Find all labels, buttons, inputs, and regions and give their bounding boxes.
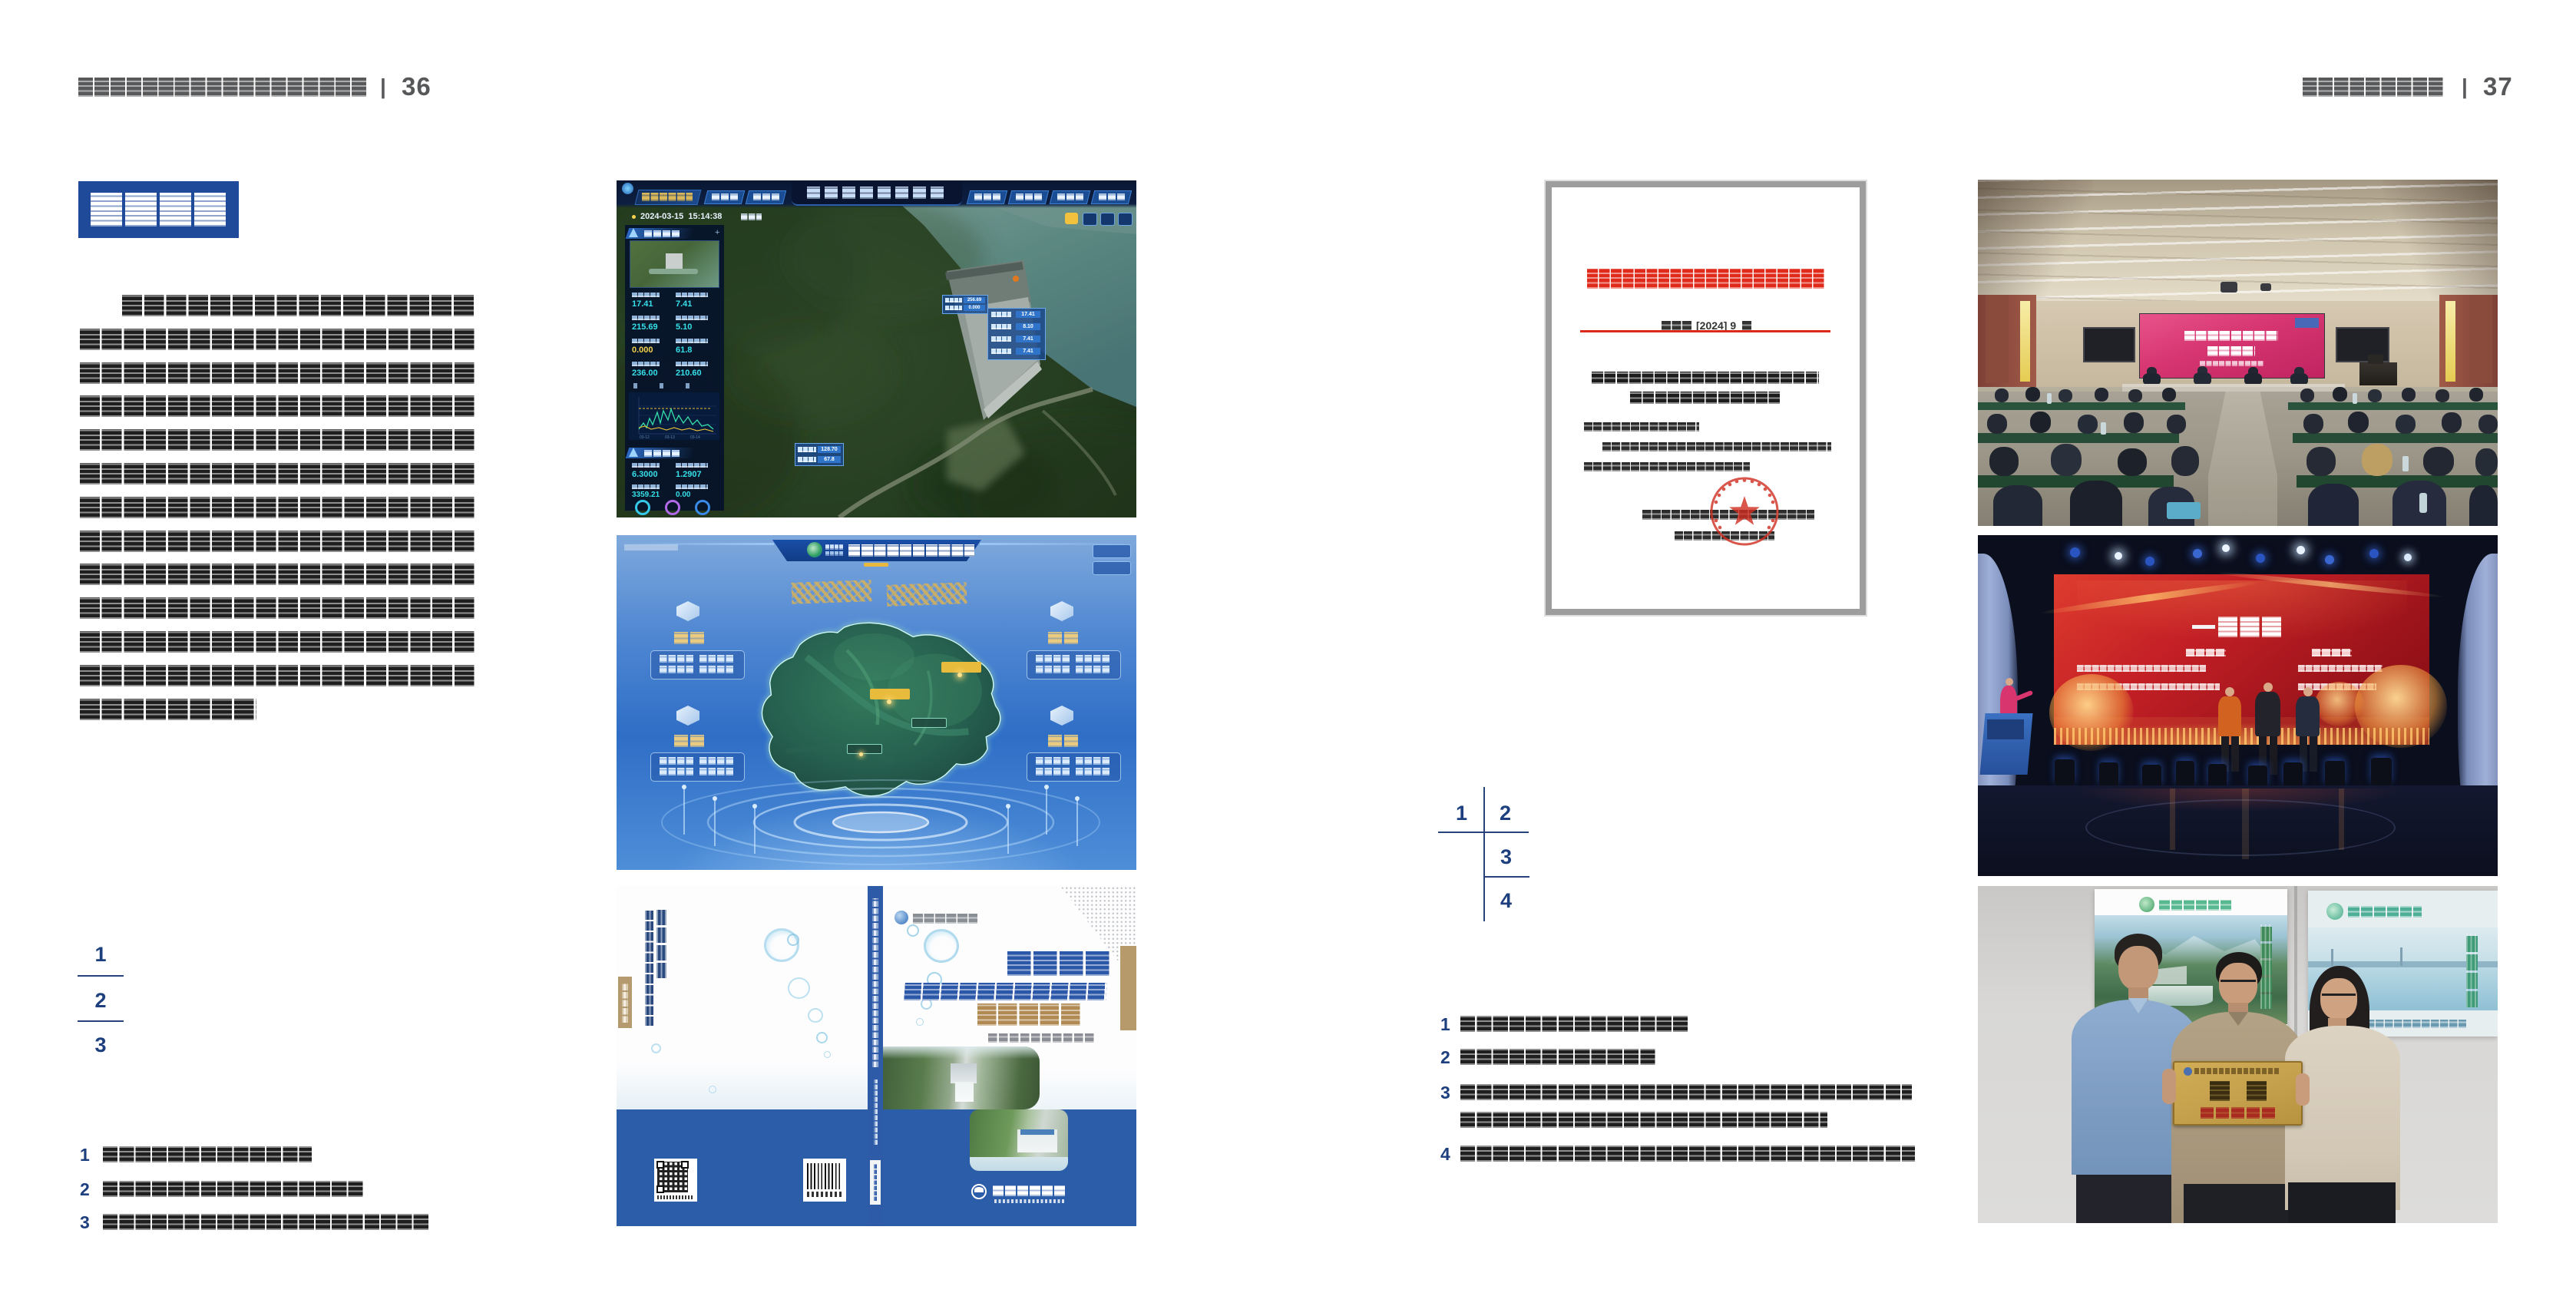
svg-text:03-13: 03-13 [665,435,675,440]
svg-text:03-14: 03-14 [690,435,700,440]
svg-text:03-12: 03-12 [640,435,650,440]
